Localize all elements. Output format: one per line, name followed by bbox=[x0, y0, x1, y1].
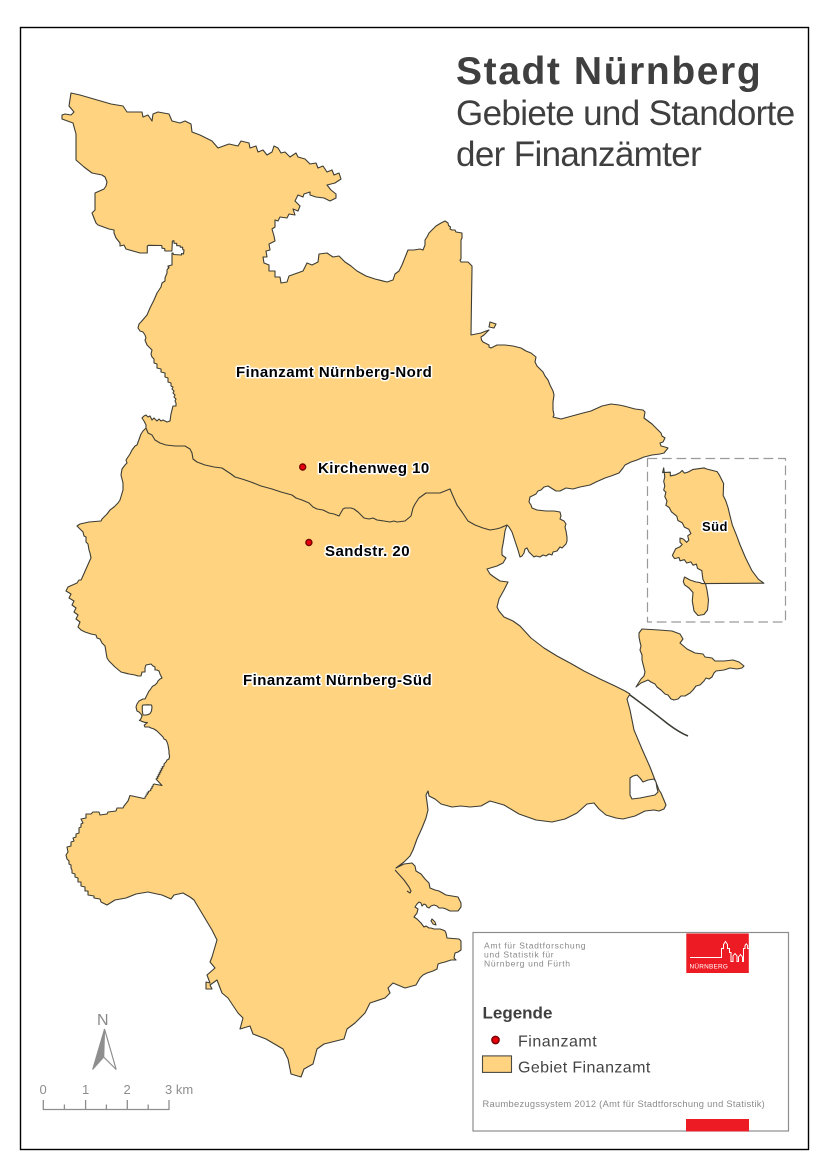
svg-text:0: 0 bbox=[40, 1082, 47, 1097]
svg-text:Finanzamt Nürnberg-Süd: Finanzamt Nürnberg-Süd bbox=[243, 672, 432, 689]
svg-text:Nürnberg und Fürth: Nürnberg und Fürth bbox=[484, 959, 571, 969]
svg-text:Sandstr. 20: Sandstr. 20 bbox=[325, 543, 410, 560]
svg-text:Finanzamt Nürnberg-Nord: Finanzamt Nürnberg-Nord bbox=[236, 364, 432, 381]
svg-text:3 km: 3 km bbox=[165, 1082, 193, 1097]
svg-text:Gebiete und Standorte: Gebiete und Standorte bbox=[456, 94, 795, 133]
svg-text:Kirchenweg 10: Kirchenweg 10 bbox=[318, 460, 430, 477]
svg-text:Stadt Nürnberg: Stadt Nürnberg bbox=[456, 50, 762, 93]
svg-text:der Finanzämter: der Finanzämter bbox=[456, 135, 702, 174]
svg-text:1: 1 bbox=[82, 1082, 89, 1097]
svg-text:NÜRNBERG: NÜRNBERG bbox=[690, 963, 729, 971]
svg-text:Legende: Legende bbox=[483, 1004, 553, 1023]
svg-text:Süd: Süd bbox=[702, 519, 728, 534]
svg-text:2: 2 bbox=[124, 1082, 131, 1097]
svg-text:Gebiet Finanzamt: Gebiet Finanzamt bbox=[518, 1060, 651, 1077]
svg-text:Finanzamt: Finanzamt bbox=[518, 1034, 597, 1051]
svg-text:N: N bbox=[97, 1012, 109, 1029]
svg-text:Raumbezugssystem 2012 (Amt für: Raumbezugssystem 2012 (Amt für Stadtfors… bbox=[483, 1099, 766, 1109]
